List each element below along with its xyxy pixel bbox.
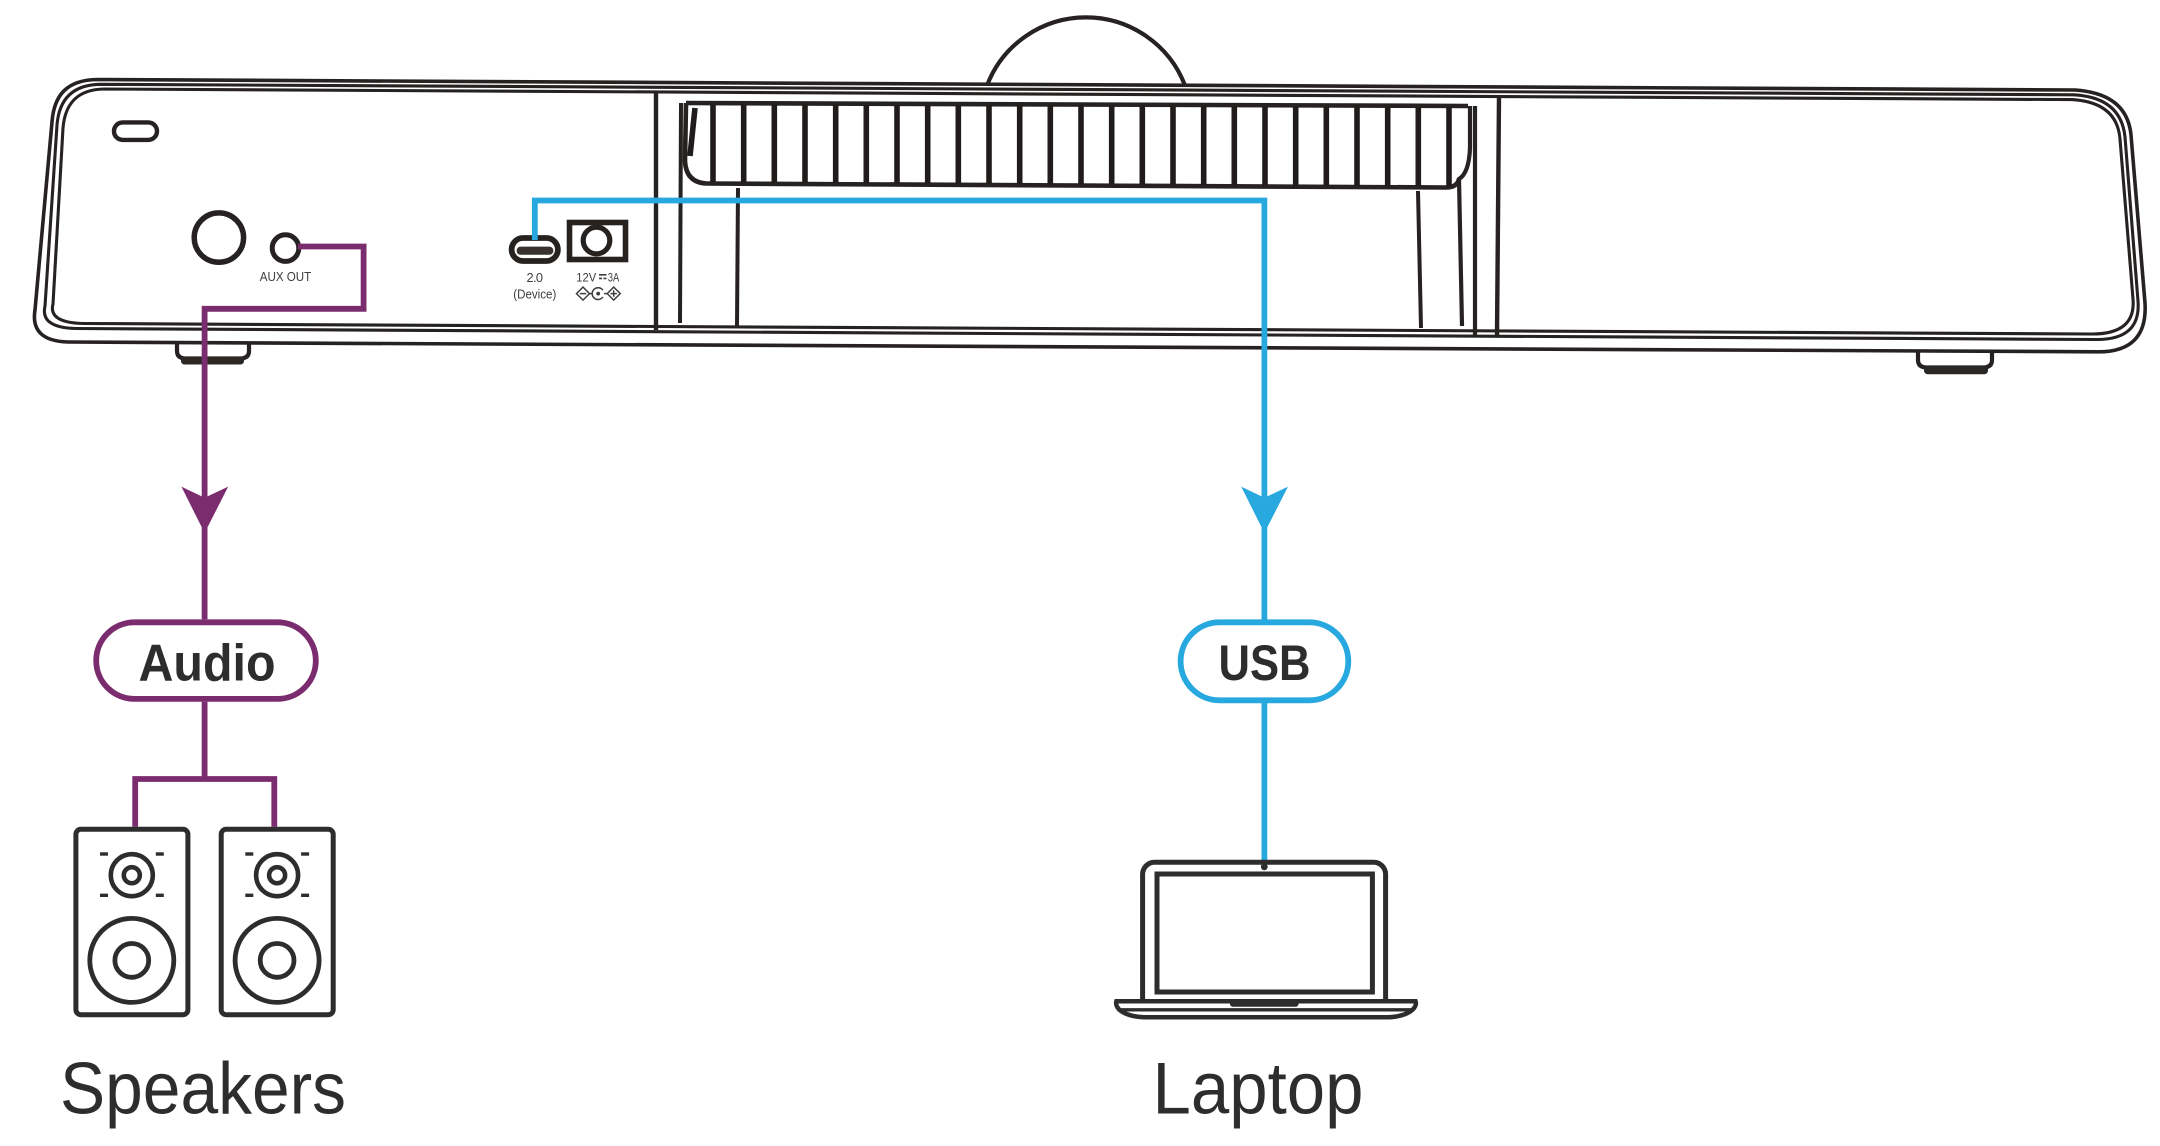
svg-text:3A: 3A [608, 271, 620, 285]
svg-text:Laptop: Laptop [1153, 1049, 1364, 1130]
svg-text:USB: USB [1219, 635, 1311, 691]
svg-text:Speakers: Speakers [60, 1049, 346, 1130]
svg-text:(Device): (Device) [513, 287, 556, 302]
svg-text:2.0: 2.0 [527, 270, 544, 285]
svg-text:AUX OUT: AUX OUT [260, 269, 312, 284]
svg-text:12V: 12V [576, 271, 596, 285]
svg-text:Audio: Audio [139, 635, 276, 693]
